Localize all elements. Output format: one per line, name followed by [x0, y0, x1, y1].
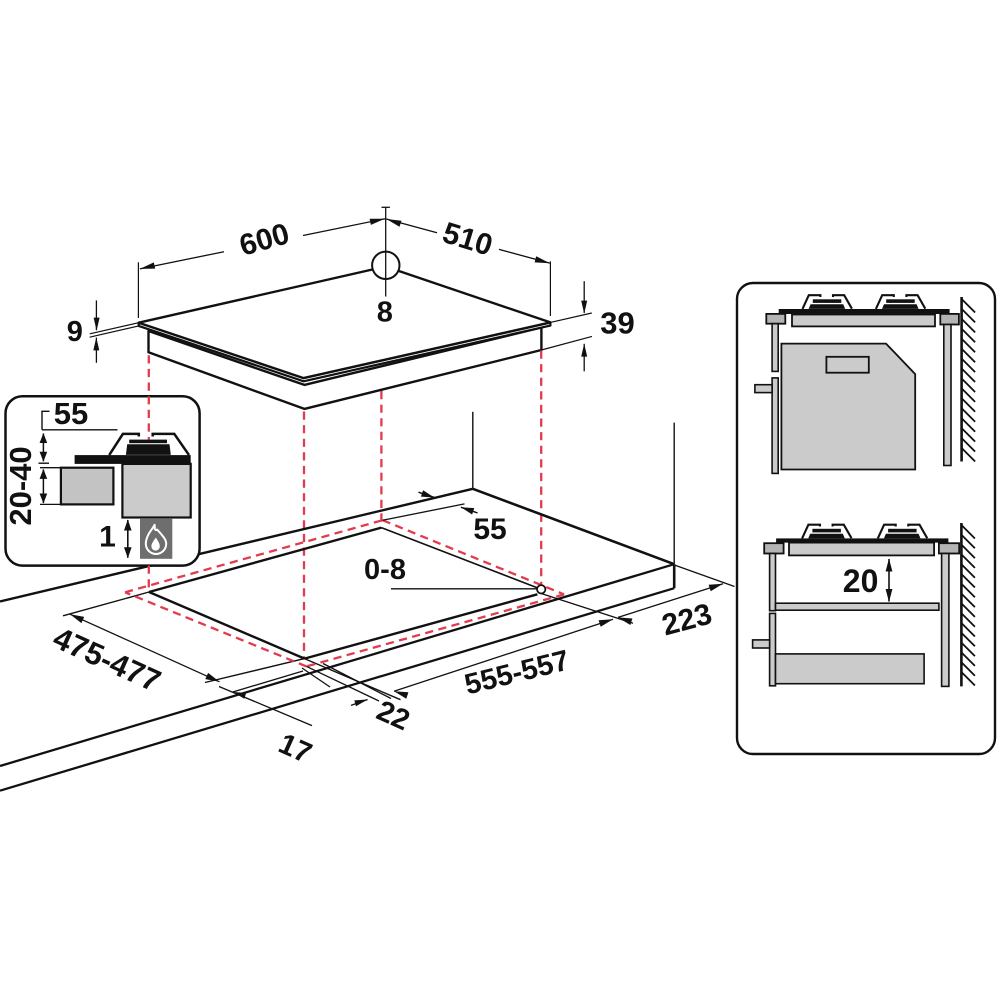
- svg-text:1: 1: [99, 521, 116, 554]
- svg-text:55: 55: [54, 396, 88, 431]
- svg-text:8: 8: [377, 297, 393, 329]
- svg-text:39: 39: [600, 305, 634, 340]
- svg-text:20: 20: [843, 563, 879, 599]
- svg-text:20-40: 20-40: [3, 446, 38, 525]
- svg-text:55: 55: [473, 513, 506, 546]
- svg-text:0-8: 0-8: [364, 554, 406, 586]
- svg-text:9: 9: [67, 316, 83, 348]
